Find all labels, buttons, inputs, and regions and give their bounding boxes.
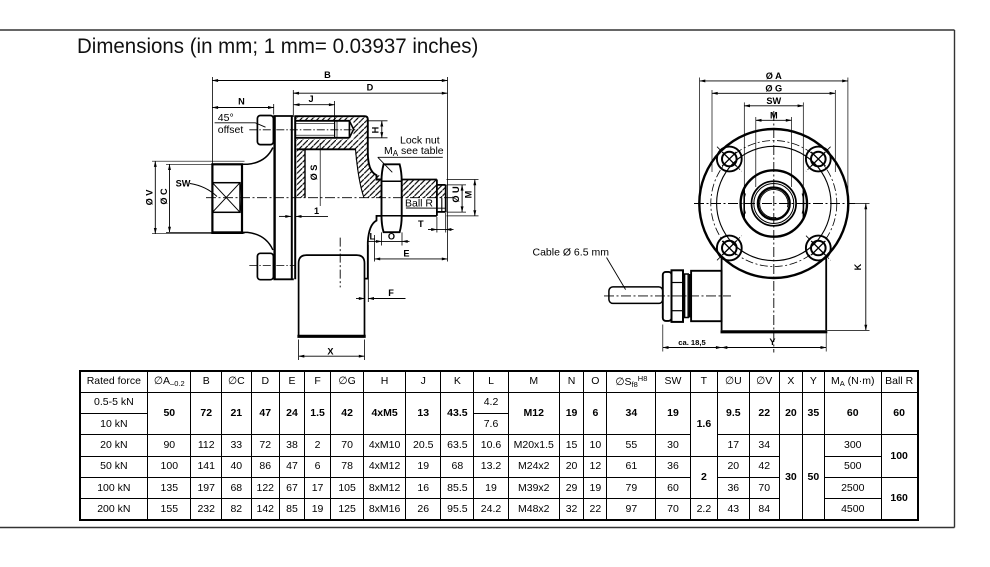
- svg-text:E: E: [403, 249, 409, 259]
- svg-text:Ø C: Ø C: [159, 188, 169, 205]
- svg-text:Cable Ø 6.5 mm: Cable Ø 6.5 mm: [533, 247, 610, 259]
- svg-text:X: X: [327, 346, 334, 356]
- svg-text:K: K: [853, 263, 863, 270]
- svg-text:1: 1: [314, 206, 319, 216]
- svg-text:Ø S: Ø S: [309, 165, 319, 181]
- svg-text:H: H: [370, 126, 380, 133]
- svg-text:B: B: [324, 70, 331, 80]
- svg-text:M: M: [464, 190, 474, 198]
- svg-text:J: J: [308, 94, 313, 104]
- svg-text:L: L: [369, 232, 375, 242]
- svg-text:SW: SW: [176, 179, 191, 189]
- svg-text:F: F: [388, 288, 394, 298]
- svg-text:Ø V: Ø V: [145, 189, 155, 206]
- svg-text:T: T: [418, 219, 424, 229]
- svg-text:Ball R: Ball R: [405, 198, 433, 210]
- svg-text:SW: SW: [766, 96, 781, 106]
- svg-text:D: D: [367, 83, 374, 93]
- svg-text:Ø G: Ø G: [765, 84, 782, 94]
- svg-text:N: N: [238, 97, 245, 107]
- svg-text:O: O: [388, 232, 395, 242]
- svg-text:M: M: [770, 110, 778, 120]
- svg-text:45°: 45°: [218, 112, 234, 124]
- svg-text:MA see table: MA see table: [384, 145, 444, 158]
- svg-text:Ø A: Ø A: [766, 71, 782, 81]
- svg-text:Ø U: Ø U: [451, 186, 461, 203]
- svg-text:offset: offset: [218, 124, 244, 136]
- svg-text:Y: Y: [769, 337, 775, 347]
- svg-text:ca. 18,5: ca. 18,5: [678, 338, 706, 347]
